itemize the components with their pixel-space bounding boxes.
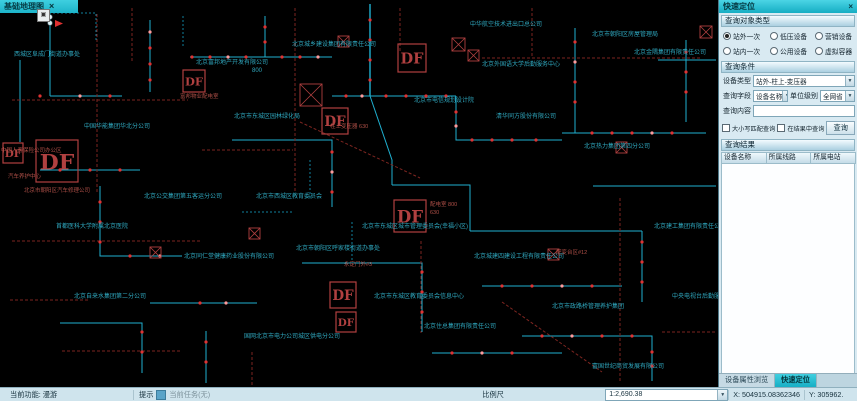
map-red-label: 北京市朝阳区汽车修理公司 xyxy=(24,186,90,194)
map-device-dot xyxy=(98,240,101,243)
case-match-label: 大小写匹配查询 xyxy=(732,124,775,133)
map-device-dot xyxy=(263,40,266,43)
map-device-dot xyxy=(640,240,643,243)
column-line[interactable]: 所属线路 xyxy=(766,152,812,164)
map-red-label: 汽车养护中心 xyxy=(8,172,42,180)
map-device-dot xyxy=(420,310,423,313)
map-device-dot xyxy=(420,270,423,273)
map-line xyxy=(53,13,96,42)
radio-label: 站内一次 xyxy=(733,46,760,56)
map-device-dot xyxy=(118,168,121,171)
result-table-header: 设备名称 所属线路 所属电站 xyxy=(721,152,855,164)
map-label: 北京市东城区教育委员会信息中心 xyxy=(374,292,464,300)
map-device-dot xyxy=(360,94,363,97)
map-red-label: 配电室 800 xyxy=(430,200,457,208)
map-label: 北京市西城区教育委员会 xyxy=(256,192,322,200)
map-device-dot xyxy=(78,94,81,97)
radio-label: 低压设备 xyxy=(780,31,807,41)
map-device-dot xyxy=(298,55,301,58)
map-label: 北京公交集团第五客运分公司 xyxy=(144,192,222,200)
object-type-radio-group: 站外一次 低压设备 营销设备 站内一次 公用设备 虚拟容器 xyxy=(719,27,857,59)
x-coordinate-readout: X: 504915.08362346 xyxy=(728,390,804,400)
map-device-dot xyxy=(510,351,513,354)
map-label: 800 xyxy=(252,68,263,74)
hint-icon xyxy=(156,390,166,400)
map-device-dot xyxy=(330,150,333,153)
statusbar-right: 比例尺 1:2,690.38 ▼ X: 504915.08362346 Y: 3… xyxy=(472,388,857,401)
map-label: 北京自来水集团第二分公司 xyxy=(74,292,146,300)
section-query-result: 查询结果 xyxy=(721,139,855,151)
map-label: 西城区阜成门街道办事处 xyxy=(14,50,80,58)
map-label: 北京同仁堂健康药业股份有限公司 xyxy=(184,252,274,260)
case-match-checkbox[interactable] xyxy=(722,124,730,132)
map-device-dot xyxy=(570,334,573,337)
section-query-condition: 查询条件 xyxy=(721,61,855,73)
unit-level-select[interactable]: 全网省 ▼ xyxy=(820,90,855,102)
hint-label: 提示 xyxy=(139,390,153,400)
df-box-label: DF xyxy=(185,74,203,88)
radio-public-device[interactable]: 公用设备 xyxy=(770,46,815,56)
radio-dot xyxy=(815,32,823,40)
map-red-label: 柱上变压器 630 xyxy=(330,122,368,130)
radio-label: 公用设备 xyxy=(780,46,807,56)
column-station[interactable]: 所属电站 xyxy=(810,152,856,164)
map-device-dot xyxy=(140,330,143,333)
hint-segment: 提示 当前任务(无) xyxy=(133,390,215,400)
map-device-dot xyxy=(368,18,371,21)
map-device-dot xyxy=(316,55,319,58)
map-canvas[interactable]: DFDFDFDFDFDFDFDF北京富邦地产开发有限公司800北京城乡建设集团有… xyxy=(0,0,718,387)
map-device-dot xyxy=(470,138,473,141)
map-label: 北京金隅集团有限责任公司 xyxy=(634,48,706,56)
query-field-row: 查询字段 设备名称 ▼ 单位级别 全网省 ▼ xyxy=(719,88,857,103)
map-label: 北京市东城区城市管理委员会(幸福小区) xyxy=(362,222,468,230)
map-device-dot xyxy=(226,55,229,58)
map-line xyxy=(370,96,392,185)
status-bar: 当前功能: 漫游 提示 当前任务(无) 比例尺 1:2,690.38 ▼ X: … xyxy=(0,387,857,401)
map-device-dot xyxy=(510,138,513,141)
y-coordinate-readout: Y: 305962. xyxy=(804,390,857,400)
scale-value: 1:2,690.38 xyxy=(609,391,642,398)
map-device-dot xyxy=(640,280,643,283)
radio-inside-primary[interactable]: 站内一次 xyxy=(723,46,770,56)
map-label: 北京市电信规划设计院 xyxy=(414,96,474,104)
query-options-row: 大小写匹配查询 在结果中查询 查询 xyxy=(719,118,857,137)
panel-bottom-tabs: 设备属性浏览 快速定位 xyxy=(719,373,857,387)
map-overview-icon[interactable]: ▣ xyxy=(37,9,50,22)
map-label: 北京城乡建设集团有限责任公司 xyxy=(292,40,376,48)
search-in-results-label: 在结果中查询 xyxy=(787,124,824,133)
df-box-label: DF xyxy=(332,288,354,304)
device-type-label: 设备类型 xyxy=(723,76,751,86)
gis-application-window: DFDFDFDFDFDFDFDF北京富邦地产开发有限公司800北京城乡建设集团有… xyxy=(0,0,857,401)
panel-title-bar: 快速定位 × xyxy=(719,0,857,13)
device-type-value: 站外-柱上-变压器 xyxy=(756,76,807,86)
map-device-dot xyxy=(630,334,633,337)
scale-select[interactable]: 1:2,690.38 ▼ xyxy=(605,389,728,401)
map-device-dot xyxy=(534,138,537,141)
map-device-dot xyxy=(148,46,151,49)
tab-quick-locate[interactable]: 快速定位 xyxy=(775,374,817,387)
map-device-dot xyxy=(450,351,453,354)
map-device-dot xyxy=(368,78,371,81)
chevron-down-icon[interactable]: ▼ xyxy=(845,76,854,86)
map-device-dot xyxy=(454,124,457,127)
chevron-down-icon[interactable]: ▼ xyxy=(845,91,854,101)
section-query-object-type: 查询对象类型 xyxy=(721,15,855,27)
radio-label: 虚拟容器 xyxy=(825,46,852,56)
hint-value: 当前任务(无) xyxy=(169,390,210,400)
radio-marketing[interactable]: 营销设备 xyxy=(815,31,857,41)
map-device-dot xyxy=(108,94,111,97)
map-label: 北京建工集团有限责任公司 xyxy=(654,222,718,230)
map-line xyxy=(300,122,420,178)
unit-level-value: 全网省 xyxy=(823,91,843,101)
map-device-dot xyxy=(590,284,593,287)
query-button[interactable]: 查询 xyxy=(826,121,855,135)
map-label: 中央电视台后勤服务中心 xyxy=(672,292,718,300)
map-red-label: 富邦物业配电室 xyxy=(180,92,219,100)
map-device-dot xyxy=(38,94,41,97)
search-in-results-checkbox[interactable] xyxy=(777,124,785,132)
map-label: 北京热力集团第四分公司 xyxy=(584,142,650,150)
map-red-label: 配变台区#12 xyxy=(556,248,587,256)
map-red-label: 永定门外#3 xyxy=(344,260,372,268)
map-device-dot xyxy=(454,110,457,113)
scale-label: 比例尺 xyxy=(477,390,605,400)
map-line xyxy=(60,323,142,373)
map-device-dot xyxy=(204,340,207,343)
map-device-dot xyxy=(573,60,576,63)
current-function-status: 当前功能: 漫游 xyxy=(5,390,133,400)
map-device-dot xyxy=(573,80,576,83)
map-label: 北京市东城区园林绿化局 xyxy=(234,112,300,120)
map-device-dot xyxy=(280,55,283,58)
map-label: 北京市朝阳区呼家楼街道办事处 xyxy=(296,244,380,252)
map-device-dot xyxy=(670,131,673,134)
radio-label: 营销设备 xyxy=(825,31,852,41)
map-device-dot xyxy=(263,25,266,28)
map-device-dot xyxy=(330,190,333,193)
unit-level-label: 单位级别 xyxy=(790,91,818,101)
map-device-dot xyxy=(190,55,193,58)
map-device-dot xyxy=(330,170,333,173)
map-device-dot xyxy=(640,260,643,263)
df-box-label: DF xyxy=(338,317,355,329)
map-device-dot xyxy=(368,58,371,61)
map-device-dot xyxy=(540,334,543,337)
map-device-dot xyxy=(404,94,407,97)
map-device-dot xyxy=(148,30,151,33)
map-red-label: 中国人寿保险公司办公区 xyxy=(1,146,62,154)
device-type-select[interactable]: 站外-柱上-变压器 ▼ xyxy=(753,75,855,87)
map-device-dot xyxy=(490,138,493,141)
map-label: 北京外国语大学后勤服务中心 xyxy=(482,60,560,68)
map-device-dot xyxy=(148,78,151,81)
map-device-dot xyxy=(560,284,563,287)
map-device-dot xyxy=(630,131,633,134)
map-device-dot xyxy=(530,284,533,287)
map-device-dot xyxy=(610,131,613,134)
map-device-dot xyxy=(88,168,91,171)
column-device-name[interactable]: 设备名称 xyxy=(721,152,767,164)
map-label: 北京住总集团有限责任公司 xyxy=(424,322,496,330)
map-device-dot xyxy=(573,100,576,103)
radio-dot xyxy=(770,47,778,55)
map-device-dot xyxy=(650,131,653,134)
map-device-dot xyxy=(500,284,503,287)
map-device-dot xyxy=(128,254,131,257)
map-line xyxy=(502,302,602,372)
query-field-label: 查询字段 xyxy=(723,91,751,101)
map-device-dot xyxy=(684,70,687,73)
map-device-dot xyxy=(204,360,207,363)
map-device-dot xyxy=(198,301,201,304)
tab-device-attribute-browse[interactable]: 设备属性浏览 xyxy=(719,374,775,387)
radio-dot xyxy=(815,47,823,55)
map-device-dot xyxy=(244,55,247,58)
map-device-dot xyxy=(650,350,653,353)
map-device-dot xyxy=(480,351,483,354)
radio-outside-primary[interactable]: 站外一次 xyxy=(723,31,770,41)
map-line xyxy=(190,16,265,57)
radio-label: 站外一次 xyxy=(733,31,760,41)
panel-close-icon[interactable]: × xyxy=(848,2,853,11)
device-type-row: 设备类型 站外-柱上-变压器 ▼ xyxy=(719,73,857,88)
map-label: 北京城建四建设工程有限责任公司 xyxy=(474,252,564,260)
map-device-dot xyxy=(573,40,576,43)
map-label: 首都医科大学附属北京医院 xyxy=(56,222,128,230)
map-device-dot xyxy=(684,90,687,93)
radio-low-voltage[interactable]: 低压设备 xyxy=(770,31,815,41)
map-device-dot xyxy=(590,131,593,134)
map-device-dot xyxy=(384,94,387,97)
map-device-dot xyxy=(98,200,101,203)
map-graphics: DFDFDFDFDFDFDFDF北京富邦地产开发有限公司800北京城乡建设集团有… xyxy=(0,0,718,387)
map-device-dot xyxy=(600,334,603,337)
map-label: 国网北京市电力公司城区供电分公司 xyxy=(244,332,340,340)
map-device-dot xyxy=(140,350,143,353)
df-box-label: DF xyxy=(401,51,425,68)
map-device-dot xyxy=(148,62,151,65)
radio-dot xyxy=(770,32,778,40)
map-device-dot xyxy=(208,55,211,58)
radio-dot xyxy=(723,32,731,40)
map-label: 北京市政路桥管理养护集团 xyxy=(552,302,624,310)
radio-virtual-container[interactable]: 虚拟容器 xyxy=(815,46,857,56)
radio-dot xyxy=(723,47,731,55)
map-red-label: 630 xyxy=(430,210,439,216)
map-label: 清华同方股份有限公司 xyxy=(496,112,556,120)
query-content-row: 查询内容 xyxy=(719,103,857,118)
quick-locate-panel: 快速定位 × 查询对象类型 站外一次 低压设备 营销设备 站内一次 公用设备 xyxy=(718,0,857,387)
panel-title: 快速定位 xyxy=(723,1,755,12)
query-field-select[interactable]: 设备名称 ▼ xyxy=(753,90,788,102)
map-line xyxy=(522,336,652,381)
map-label: 北京市朝阳区房屋管理局 xyxy=(592,30,658,38)
map-label: 富国世纪商贸发展有限公司 xyxy=(592,362,664,370)
map-label: 北京富邦地产开发有限公司 xyxy=(196,58,268,66)
chevron-down-icon[interactable]: ▼ xyxy=(717,390,727,400)
query-content-label: 查询内容 xyxy=(723,106,751,116)
chevron-down-icon[interactable]: ▼ xyxy=(782,91,788,101)
map-arrow-icon xyxy=(55,20,63,27)
result-list-empty[interactable] xyxy=(721,164,855,398)
map-label: 中华航空技术进出口总公司 xyxy=(470,20,542,28)
query-field-value: 设备名称 xyxy=(756,91,782,101)
map-device-dot xyxy=(224,301,227,304)
map-device-dot xyxy=(344,94,347,97)
query-content-input[interactable] xyxy=(753,105,855,117)
map-label: 中国华能集团华北分公司 xyxy=(84,122,150,130)
